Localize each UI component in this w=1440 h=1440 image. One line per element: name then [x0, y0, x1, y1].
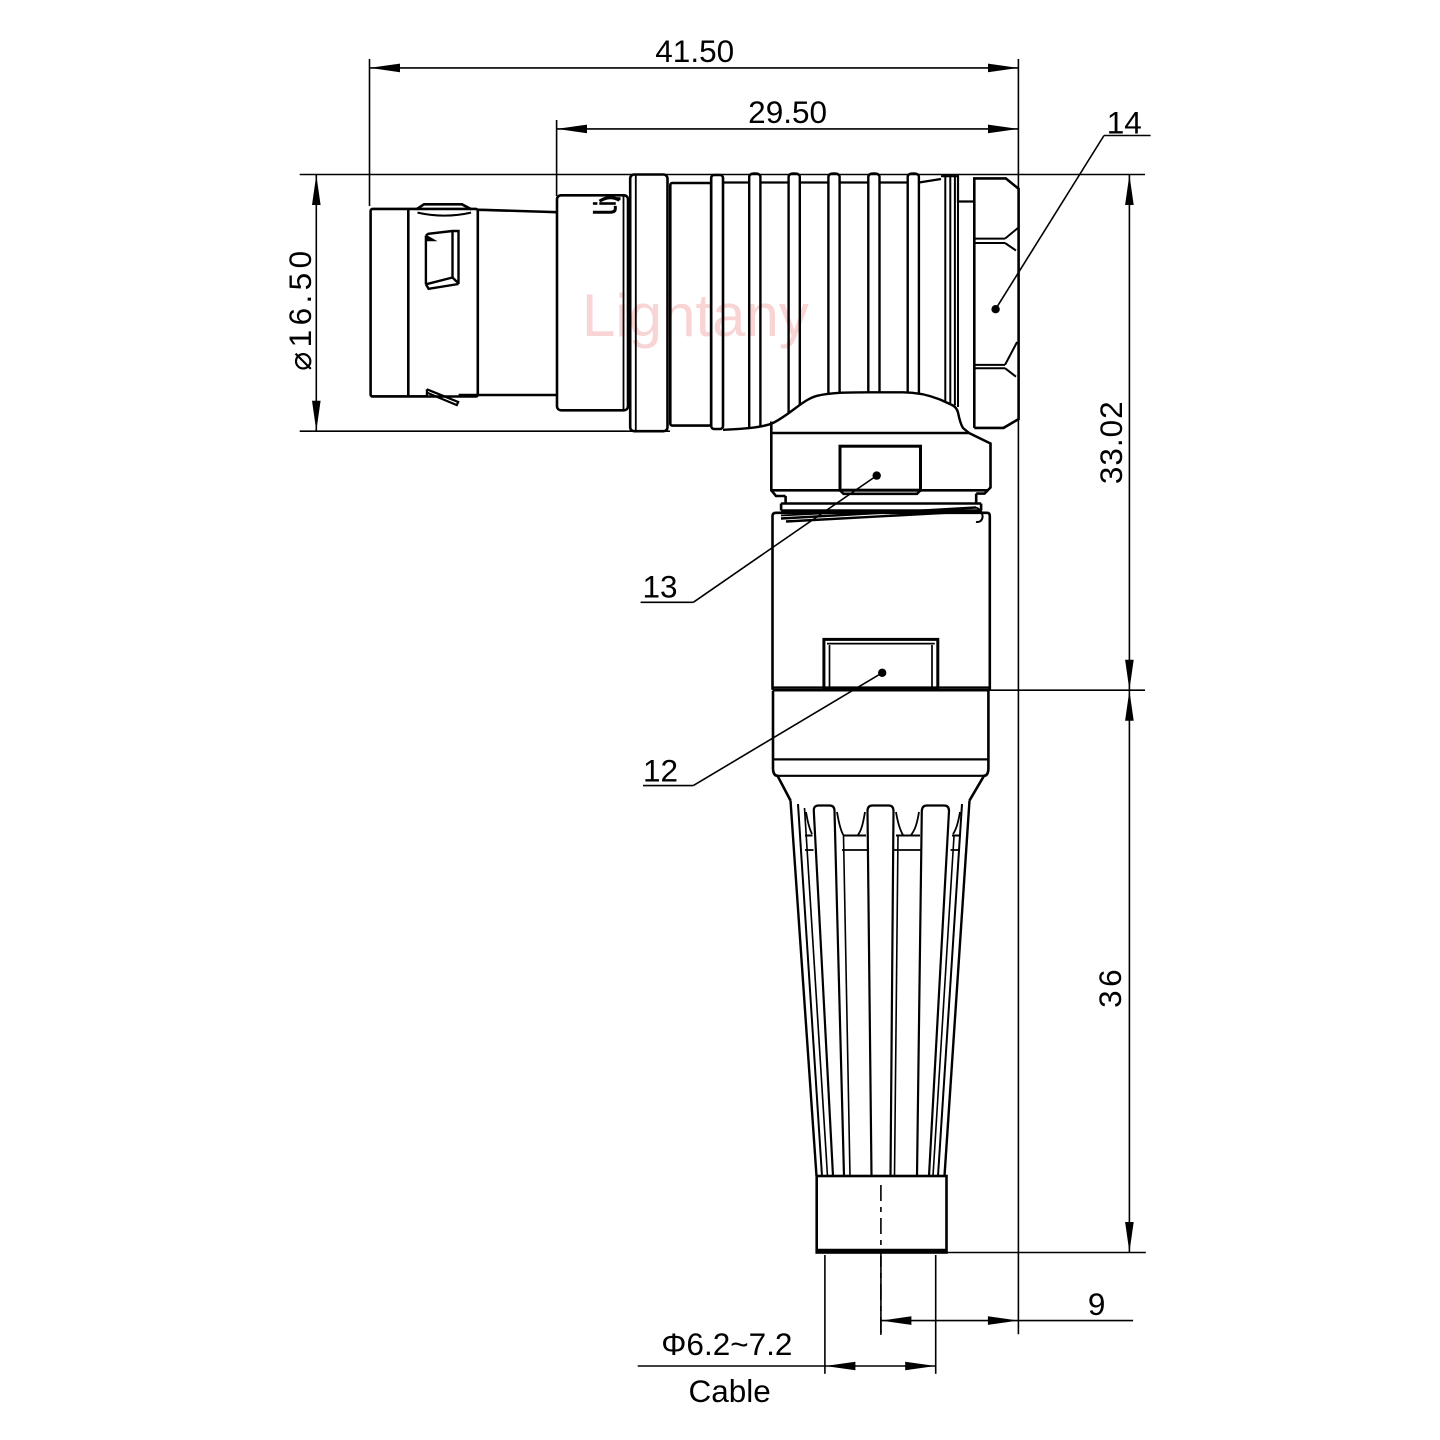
- svg-text:41.50: 41.50: [655, 33, 734, 69]
- svg-text:36: 36: [1092, 966, 1128, 1008]
- svg-text:12: 12: [643, 753, 678, 789]
- svg-text:Lightany: Lightany: [582, 282, 809, 349]
- svg-text:33.02: 33.02: [1093, 400, 1129, 484]
- svg-text:29.50: 29.50: [748, 94, 827, 130]
- svg-text:⌀16.50: ⌀16.50: [282, 246, 318, 370]
- svg-text:14: 14: [1107, 105, 1142, 141]
- svg-text:13: 13: [643, 569, 678, 605]
- svg-text:Cable: Cable: [689, 1373, 771, 1409]
- svg-text:Φ6.2~7.2: Φ6.2~7.2: [661, 1326, 792, 1362]
- svg-text:9: 9: [1088, 1286, 1106, 1322]
